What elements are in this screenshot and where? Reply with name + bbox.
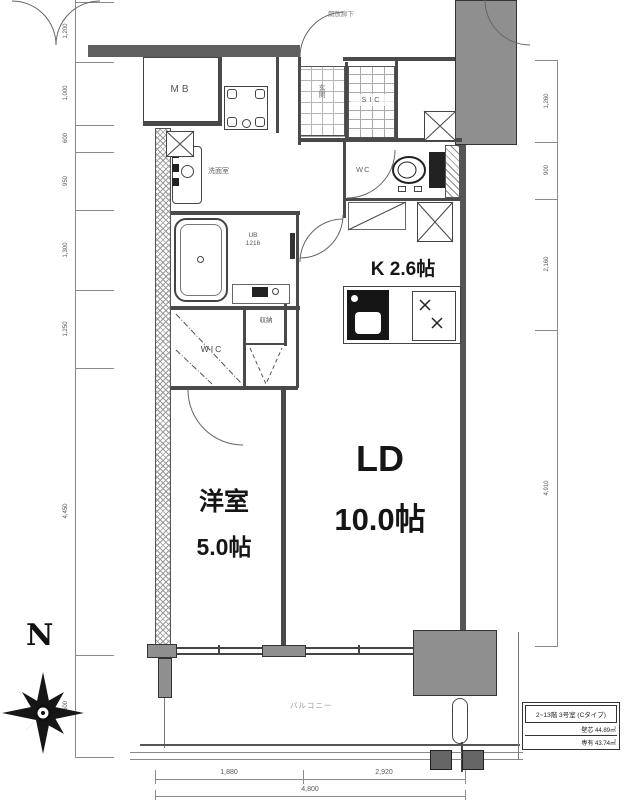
dim-right-label: 4,910 — [542, 468, 552, 508]
dim-right-label: 900 — [542, 150, 552, 190]
dim-right-line — [557, 60, 558, 647]
wall — [395, 61, 398, 141]
left-exterior-hatched-wall — [155, 128, 171, 646]
room-divider-wall — [281, 388, 286, 652]
compass-north-label: N — [26, 618, 53, 653]
toilet-base — [398, 186, 406, 192]
wall — [243, 306, 246, 388]
drain-box — [462, 750, 484, 770]
ld-size-label: 10.0帖 — [290, 494, 470, 539]
dim-tick — [155, 770, 156, 784]
dim-tick — [535, 646, 558, 647]
wall — [276, 57, 279, 133]
wall — [155, 211, 300, 215]
pan-pad — [255, 117, 265, 127]
wall — [155, 306, 300, 310]
dim-left-label: 4,450 — [61, 491, 71, 531]
refrigerator-space — [348, 202, 406, 230]
pipe-space — [166, 131, 194, 157]
compass-rose-icon — [0, 670, 86, 756]
ub-label: UB1216 — [238, 230, 268, 250]
corridor-label: 開放廊下 — [328, 8, 354, 18]
dim-bottom-label: 2,920 — [354, 769, 414, 776]
genkan-label: 玄関 — [316, 84, 326, 98]
kitchen-ps-box — [417, 202, 453, 242]
dim-left-label: 1,000 — [61, 73, 71, 113]
dim-left-label: 950 — [61, 161, 71, 201]
dim-tick — [465, 770, 466, 784]
stove — [412, 291, 456, 341]
dim-tick — [535, 330, 558, 331]
dim-bottom-line — [155, 779, 465, 780]
wall — [343, 57, 395, 61]
wall — [343, 198, 465, 201]
hatched-wall — [445, 145, 460, 198]
unit-area-row: 壁芯 44.89㎡ — [525, 723, 617, 736]
vanity-detail — [172, 178, 179, 186]
wall — [296, 215, 299, 388]
wall — [143, 122, 222, 126]
sic-label: SIC — [350, 94, 394, 106]
dim-tick — [76, 62, 114, 63]
dim-left-line — [75, 0, 76, 758]
pan-pad — [227, 117, 237, 127]
dim-left-label: 1,300 — [61, 230, 71, 270]
dim-tick — [155, 790, 156, 800]
structural-column-bottomright — [413, 630, 497, 696]
dim-total-label: 4,800 — [280, 786, 340, 793]
dim-tick — [76, 125, 114, 126]
pan-pad — [227, 89, 237, 99]
shuno-label: 収納 — [247, 314, 285, 324]
balcony-label: バルコニー — [290, 700, 332, 711]
right-exterior-wall — [460, 145, 466, 652]
mb-label: MB — [171, 84, 192, 95]
pipe-space — [424, 111, 456, 141]
tub-drain — [197, 256, 204, 263]
dim-tick — [303, 770, 304, 784]
unit-info-box: 2~13階 3号室 (Cタイプ) 壁芯 44.89㎡ 専有 43.74㎡ — [522, 702, 620, 750]
vanity-detail — [172, 164, 179, 172]
balcony-edge — [140, 744, 520, 746]
window-mullion-tick — [218, 645, 220, 655]
wall — [243, 343, 287, 345]
wc-label: WC — [356, 165, 371, 174]
pan-pad — [255, 89, 265, 99]
dim-left-label: 1,250 — [61, 309, 71, 349]
center-mullion — [262, 645, 306, 657]
wic-label: WIC — [184, 343, 240, 355]
wall — [219, 57, 222, 125]
toilet-tank — [429, 152, 445, 188]
dim-tick — [535, 142, 558, 143]
top-exterior-wall — [88, 45, 300, 57]
kitchen-label: K 2.6帖 — [342, 254, 464, 281]
dim-tick — [465, 790, 466, 800]
floor-plan: 1,200 1,000 600 950 1,300 1,250 4,450 60… — [0, 0, 626, 800]
vanity-bowl — [181, 165, 194, 178]
dim-tick — [76, 655, 114, 656]
balcony-partition-post — [158, 658, 172, 698]
meter-box: MB — [143, 57, 219, 122]
yoshitsu-label: 洋室 — [165, 482, 283, 518]
dim-left-label: 600 — [61, 118, 71, 158]
bath-fixture — [272, 288, 279, 295]
drain-outlet — [242, 119, 251, 128]
dim-tick — [76, 757, 114, 758]
dim-right-label: 2,160 — [542, 244, 552, 284]
unit-area-row: 専有 43.74㎡ — [525, 736, 617, 747]
dim-tick — [76, 290, 114, 291]
dim-tick — [76, 2, 114, 3]
sink-faucet — [351, 295, 358, 302]
toilet-base — [414, 186, 422, 192]
wall — [395, 57, 457, 61]
unit-info-title: 2~13階 3号室 (Cタイプ) — [525, 705, 617, 723]
bath-faucet — [252, 287, 268, 297]
dim-tick — [76, 368, 114, 369]
drain-box — [430, 750, 452, 770]
dim-tick — [535, 60, 558, 61]
balcony-end-line — [518, 632, 519, 760]
wall — [155, 386, 298, 390]
yoshitsu-size-label: 5.0帖 — [165, 528, 283, 562]
dim-total-line — [155, 796, 465, 797]
structural-column-topright — [455, 0, 517, 145]
column — [147, 644, 177, 658]
dim-bottom-label: 1,880 — [199, 769, 259, 776]
bath-door-frame — [290, 233, 295, 259]
dim-tick — [535, 199, 558, 200]
balcony-partition-line — [164, 698, 165, 748]
genkan-tiled-floor — [300, 66, 345, 136]
drain-pipe — [452, 698, 468, 744]
ld-label: LD — [300, 438, 460, 480]
dim-left-label: 1,200 — [61, 11, 71, 51]
wall — [343, 142, 346, 218]
sink-bowl — [355, 312, 381, 334]
window-mullion-tick — [358, 645, 360, 655]
dim-tick — [76, 210, 114, 211]
dim-tick — [76, 152, 114, 153]
senmenshitsu-label: 洗面室 — [208, 166, 229, 176]
dim-right-label: 1,260 — [542, 81, 552, 121]
